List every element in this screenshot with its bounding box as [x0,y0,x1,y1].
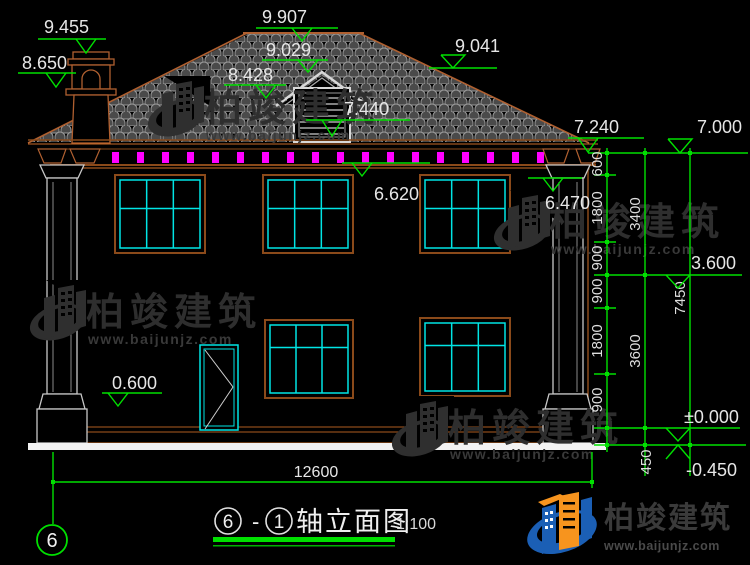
marker-chimney-top: 9.455 [38,17,106,53]
watermark-site: www.baijunjz.com [550,241,696,257]
elevation-label: 9.029 [266,40,311,60]
dim-900: 900 [589,387,606,412]
elevation-label: 3.600 [691,253,736,273]
elevation-label: 0.600 [112,373,157,393]
brand-logo-name: 柏竣建筑 [604,501,732,535]
marker-zero-level: ±0.000 [666,407,739,441]
dim-3400: 3400 [627,197,644,230]
title-axis-start: 6 [223,512,234,533]
window-lower-middle [265,320,353,398]
elevation-label: 6.620 [374,184,419,204]
dim-total-width: 12600 [294,464,339,481]
dim-1800: 1800 [589,324,606,357]
marker-roof-right: 9.041 [429,36,500,68]
dentil-row [112,152,544,163]
elevation-label: 9.041 [455,36,500,56]
axis-bubble: 6 [37,452,67,555]
elevation-label: 7.240 [574,117,619,137]
window-upper-left [115,175,205,253]
dim-900: 900 [589,278,606,303]
brand-logo-site: www.baijunjz.com [603,539,720,553]
elevation-label: 8.428 [228,65,273,85]
marker-level-top-right: 7.000 [668,117,742,153]
title-underline-thin [213,545,395,547]
elevation-label: 7.440 [344,99,389,119]
entry-door [200,345,238,430]
title-underline-thick [213,537,395,542]
brand-logo: 柏竣建筑 www.baijunjz.com [522,488,732,562]
watermark-brand: 柏竣建筑 [448,408,624,450]
window-upper-middle [263,175,353,253]
window-lower-right [420,318,510,396]
elevation-label: -0.450 [686,460,737,480]
eave-cornice [28,140,600,169]
title-block: 6 - 1 轴立面图 1:100 [213,507,436,547]
axis-number: 6 [46,530,57,552]
chimney [66,52,116,143]
elevation-label: 9.907 [262,7,307,27]
watermark-site: www.baijunjz.com [87,331,233,347]
watermark-site: www.baijunjz.com [205,127,351,143]
dim-1800: 1800 [589,191,606,224]
marker-ground: -0.450 [666,445,737,480]
elevation-label: ±0.000 [684,407,739,427]
elevation-label: 6.470 [545,193,590,213]
dim-450: 450 [638,449,655,474]
cad-elevation-drawing: 柏竣建筑 www.baijunjz.com 柏竣建筑 www.baijunjz.… [0,0,750,565]
elevation-label: 8.650 [22,53,67,73]
drawing-scale: 1:100 [396,516,436,533]
title-axis-end: 1 [274,512,285,533]
watermark-brand: 柏竣建筑 [86,292,262,334]
elevation-label: 9.455 [44,17,89,37]
drawing-canvas: 柏竣建筑 www.baijunjz.com 柏竣建筑 www.baijunjz.… [0,0,750,565]
elevation-label: 7.000 [697,117,742,137]
marker-eave-right: 7.240 [568,117,644,152]
dim-900: 900 [589,245,606,270]
brand-logo-icon [522,488,604,562]
dim-600: 600 [589,151,606,176]
watermark-site: www.baijunjz.com [449,446,595,462]
marker-chimney-cap: 8.650 [18,53,76,87]
drawing-title: 轴立面图 [296,507,412,537]
dim-3600: 3600 [627,334,644,367]
title-separator: - [252,509,259,534]
